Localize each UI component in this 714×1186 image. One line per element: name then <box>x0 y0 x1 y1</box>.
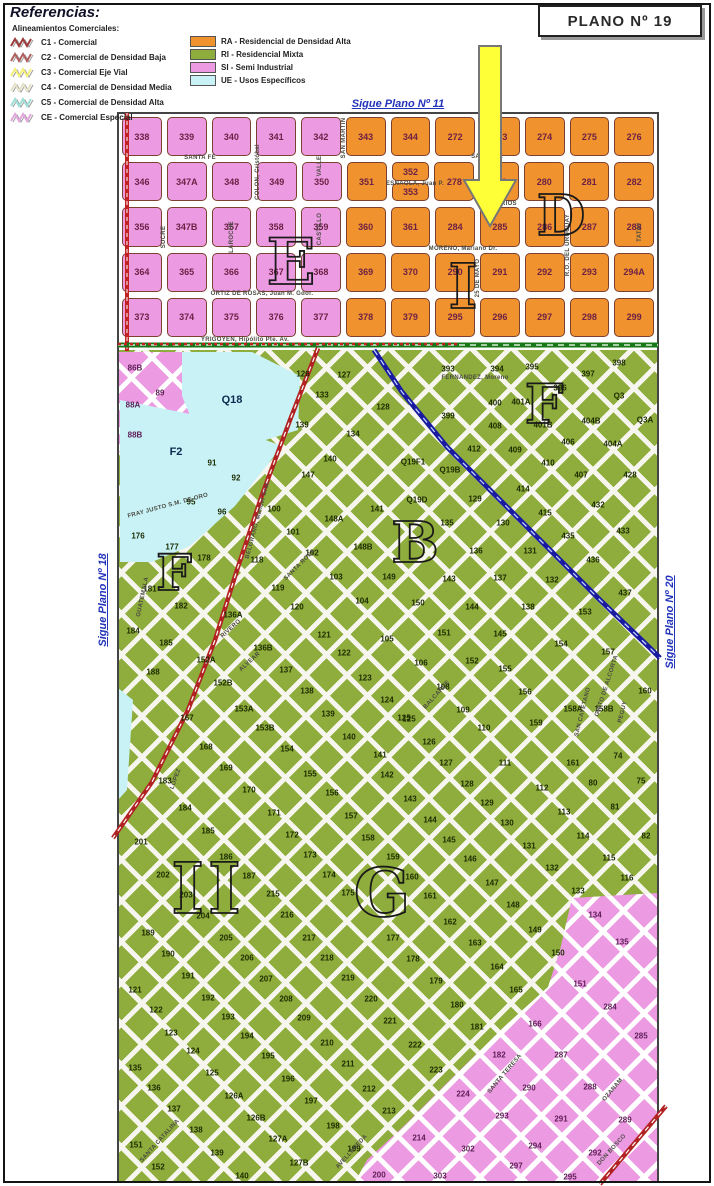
plano-page: PLANO Nº 19 Referencias: Alineamientos C… <box>0 0 714 1186</box>
yellow-arrow <box>464 46 516 226</box>
map: 3383393403413423433442722732742752763463… <box>0 0 714 1186</box>
arrow-layer <box>0 0 714 1186</box>
